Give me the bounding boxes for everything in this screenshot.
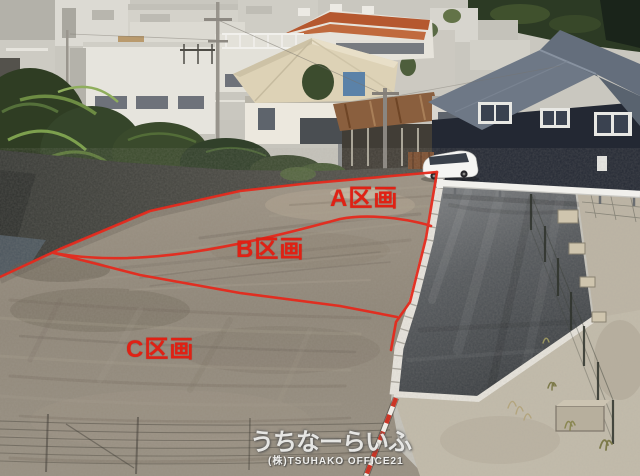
large-concrete-block (556, 400, 610, 431)
concrete-block (558, 210, 578, 223)
concrete-block (569, 243, 585, 254)
concrete-block (592, 312, 606, 322)
watermark-company: (株)TSUHAKO OFFICE21 (268, 452, 404, 467)
plot-label-b: B区画 (236, 238, 304, 262)
utility-pole (216, 2, 220, 154)
photo-canvas (0, 0, 640, 476)
concrete-block (580, 277, 595, 287)
plot-label-a: A区画 (330, 187, 398, 211)
plot-label-c: C区画 (126, 338, 194, 362)
aerial-property-photo: A区画 B区画 C区画 うちなーらいふ (株)TSUHAKO OFFICE21 (0, 0, 640, 476)
